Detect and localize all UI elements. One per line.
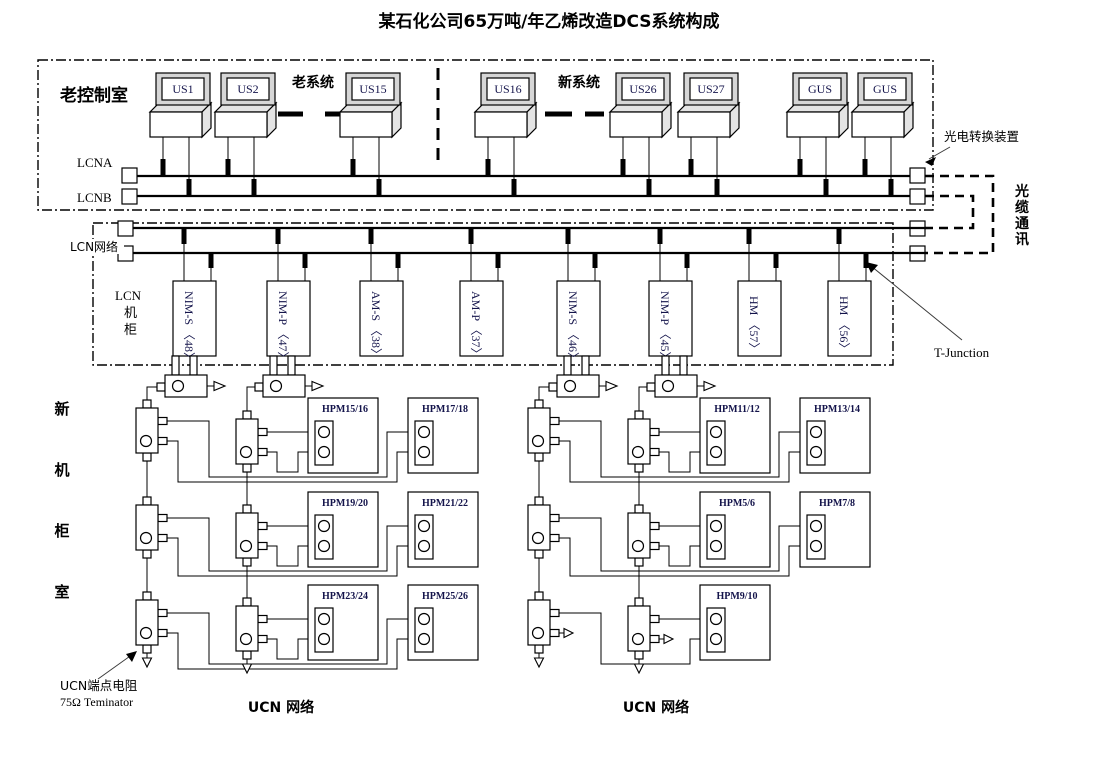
lcna-label: LCNA bbox=[77, 155, 113, 170]
new-system-label: 新系统 bbox=[558, 74, 600, 91]
ucn-terminator-down bbox=[535, 653, 544, 667]
hpm-box-19-20: HPM19/20 bbox=[308, 492, 378, 567]
hpm-label: HPM11/12 bbox=[714, 404, 760, 415]
ucn-terminator-down bbox=[143, 653, 152, 667]
svg-text:机: 机 bbox=[124, 306, 137, 321]
lcn-module-am-s-38: AM-S 〈38〉 bbox=[360, 229, 403, 360]
ucn-row-wires bbox=[559, 421, 812, 664]
lcn-module-nim-p-45: NIM-P 〈45〉 bbox=[649, 229, 692, 364]
workstation-us1: US1 bbox=[150, 73, 211, 196]
lcn-module-nim-p-47: NIM-P 〈47〉 bbox=[267, 229, 310, 364]
hpm-label: HPM21/22 bbox=[422, 498, 468, 509]
module-label: NIM-P 〈47〉 bbox=[276, 291, 290, 364]
hpm-label: HPM19/20 bbox=[322, 498, 368, 509]
workstation-label: US16 bbox=[494, 82, 521, 96]
svg-text:柜: 柜 bbox=[53, 522, 69, 540]
ucn-htap bbox=[647, 356, 715, 397]
lcnb-label: LCNB bbox=[77, 190, 112, 205]
ucn-vtap bbox=[236, 411, 267, 472]
svg-text:通: 通 bbox=[1015, 216, 1029, 232]
hpm-label: HPM17/18 bbox=[422, 404, 468, 415]
diagram-canvas: 某石化公司65万吨/年乙烯改造DCS系统构成 老控制室 老系统 新系统 LCNA… bbox=[0, 0, 1099, 766]
hpm-label: HPM5/6 bbox=[719, 498, 755, 509]
workstation-label: GUS bbox=[873, 82, 897, 96]
ucn-terminator-label-cn: UCN端点电阻 bbox=[60, 678, 138, 693]
svg-text:柜: 柜 bbox=[124, 323, 137, 338]
module-label: NIM-P 〈45〉 bbox=[658, 291, 672, 364]
module-label: NIM-S 〈46〉 bbox=[566, 291, 580, 364]
ucn-vtap bbox=[628, 598, 659, 659]
ucn-terminator-right bbox=[659, 635, 673, 644]
lcn-module-hm-56: HM 〈56〉 bbox=[828, 229, 871, 356]
hpm-box-25-26: HPM25/26 bbox=[408, 585, 478, 660]
hpm-label: HPM25/26 bbox=[422, 591, 468, 602]
lcn-module-am-p-37: AM-P 〈37〉 bbox=[460, 229, 503, 360]
hpm-box-23-24: HPM23/24 bbox=[308, 585, 378, 660]
module-label: AM-S 〈38〉 bbox=[369, 291, 383, 360]
ucn-terminator-annotation: UCN端点电阻 75Ω Teminator bbox=[60, 651, 138, 709]
workstation-label: US15 bbox=[359, 82, 386, 96]
t-junction-annotation: T-Junction bbox=[866, 262, 990, 360]
svg-text:讯: 讯 bbox=[1015, 232, 1029, 248]
ucn-network-label-right: UCN 网络 bbox=[623, 699, 689, 716]
ucn-terminator-down bbox=[243, 659, 252, 673]
hpm-box-9-10: HPM9/10 bbox=[700, 585, 770, 660]
workstation-us16: US16 bbox=[475, 73, 536, 196]
ucn-vtap bbox=[236, 598, 267, 659]
workstation-us15: US15 bbox=[340, 73, 401, 196]
old-control-room-label: 老控制室 bbox=[59, 85, 128, 106]
ucn-vtap bbox=[528, 497, 559, 558]
svg-text:新: 新 bbox=[54, 400, 69, 418]
diagram-title: 某石化公司65万吨/年乙烯改造DCS系统构成 bbox=[378, 11, 719, 32]
lcn-bus-a-left-square bbox=[118, 221, 133, 236]
hpm-label: HPM13/14 bbox=[814, 404, 860, 415]
hpm-label: HPM9/10 bbox=[716, 591, 757, 602]
hpm-label: HPM23/24 bbox=[322, 591, 368, 602]
hpm-box-13-14: HPM13/14 bbox=[800, 398, 870, 473]
ucn-vtap bbox=[628, 505, 659, 566]
ucn-vtap bbox=[528, 400, 559, 461]
ucn-vtap bbox=[236, 505, 267, 566]
ucn-htap bbox=[255, 356, 323, 397]
ucn-vtap bbox=[136, 400, 167, 461]
module-label: HM 〈57〉 bbox=[747, 296, 761, 354]
ucn-left-group: HPM15/16 HPM17/18 HPM19/20 HPM21/22 HPM2… bbox=[136, 356, 478, 673]
hpm-box-5-6: HPM5/6 bbox=[700, 492, 770, 567]
ucn-right-group: HPM11/12 HPM13/14 HPM5/6 HPM7/8 HPM9/10 bbox=[528, 356, 870, 673]
new-cabinet-room-label: 新 机 柜 室 bbox=[53, 400, 69, 601]
fiber-converter-1 bbox=[910, 168, 925, 183]
lcn-module-nim-s-48: NIM-S 〈48〉 bbox=[173, 229, 216, 364]
workstation-us27: US27 bbox=[678, 73, 739, 196]
lcnb-left-terminator bbox=[122, 189, 137, 204]
ucn-row-wires bbox=[167, 421, 420, 669]
workstation-us2: US2 bbox=[215, 73, 276, 196]
old-system-label: 老系统 bbox=[292, 74, 334, 91]
module-label: AM-P 〈37〉 bbox=[469, 291, 483, 360]
hpm-box-15-16: HPM15/16 bbox=[308, 398, 378, 473]
workstation-label: US27 bbox=[697, 82, 724, 96]
ucn-terminator-right bbox=[559, 629, 573, 638]
ucn-terminator-label-en: 75Ω Teminator bbox=[60, 695, 133, 709]
hpm-box-7-8: HPM7/8 bbox=[800, 492, 870, 567]
svg-text:缆: 缆 bbox=[1015, 199, 1029, 216]
hpm-label: HPM15/16 bbox=[322, 404, 368, 415]
workstation-label: US26 bbox=[629, 82, 656, 96]
hpm-box-21-22: HPM21/22 bbox=[408, 492, 478, 567]
workstation-label: GUS bbox=[808, 82, 832, 96]
fiber-links bbox=[925, 176, 993, 253]
fiber-converter-label: 光电转换装置 bbox=[944, 129, 1019, 144]
optical-cable-label: 光 缆 通 讯 bbox=[1014, 183, 1029, 248]
hpm-box-17-18: HPM17/18 bbox=[408, 398, 478, 473]
ucn-htap bbox=[549, 356, 617, 397]
svg-text:LCN: LCN bbox=[115, 288, 142, 303]
fiber-converter-2 bbox=[910, 189, 925, 204]
module-label: HM 〈56〉 bbox=[837, 296, 851, 354]
lcna-left-terminator bbox=[122, 168, 137, 183]
workstation-label: US2 bbox=[237, 82, 258, 96]
lcn-module-hm-57: HM 〈57〉 bbox=[738, 229, 781, 356]
module-label: NIM-S 〈48〉 bbox=[182, 291, 196, 364]
ucn-htap bbox=[157, 356, 225, 397]
lcn-network-label: LCN网络 bbox=[70, 239, 118, 254]
svg-text:室: 室 bbox=[54, 583, 69, 601]
ucn-vtap bbox=[136, 592, 167, 653]
dcs-architecture-diagram: 某石化公司65万吨/年乙烯改造DCS系统构成 老控制室 老系统 新系统 LCNA… bbox=[0, 0, 1099, 766]
ucn-vtap bbox=[136, 497, 167, 558]
hpm-label: HPM7/8 bbox=[819, 498, 855, 509]
t-junction-label: T-Junction bbox=[934, 345, 990, 360]
ucn-network-label-left: UCN 网络 bbox=[248, 699, 314, 716]
workstation-us26: US26 bbox=[610, 73, 671, 196]
workstation-label: US1 bbox=[172, 82, 193, 96]
svg-text:光: 光 bbox=[1014, 183, 1029, 200]
workstation-gus-2: GUS bbox=[852, 73, 913, 196]
ucn-vtap bbox=[528, 592, 559, 653]
fiber-converter-arrow bbox=[925, 147, 950, 166]
ucn-terminator-down bbox=[635, 659, 644, 673]
hpm-box-11-12: HPM11/12 bbox=[700, 398, 770, 473]
workstation-gus-1: GUS bbox=[787, 73, 848, 196]
svg-text:机: 机 bbox=[54, 461, 69, 479]
lcn-cabinet-label: LCN 机 柜 bbox=[115, 288, 142, 338]
lcn-module-nim-s-46: NIM-S 〈46〉 bbox=[557, 229, 600, 364]
ucn-vtap bbox=[628, 411, 659, 472]
